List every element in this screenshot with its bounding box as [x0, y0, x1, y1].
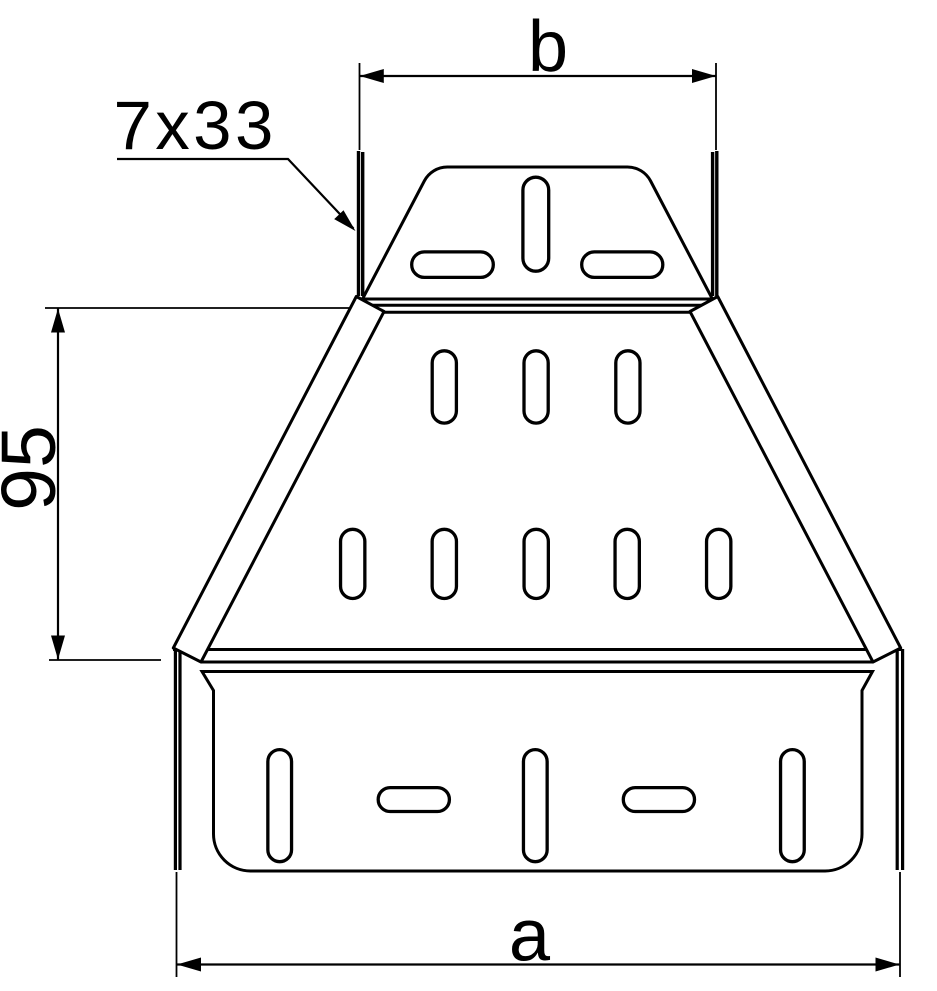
svg-text:b: b: [528, 7, 568, 87]
svg-text:95: 95: [0, 425, 72, 511]
svg-text:a: a: [509, 894, 551, 977]
svg-text:7x33: 7x33: [114, 87, 277, 164]
